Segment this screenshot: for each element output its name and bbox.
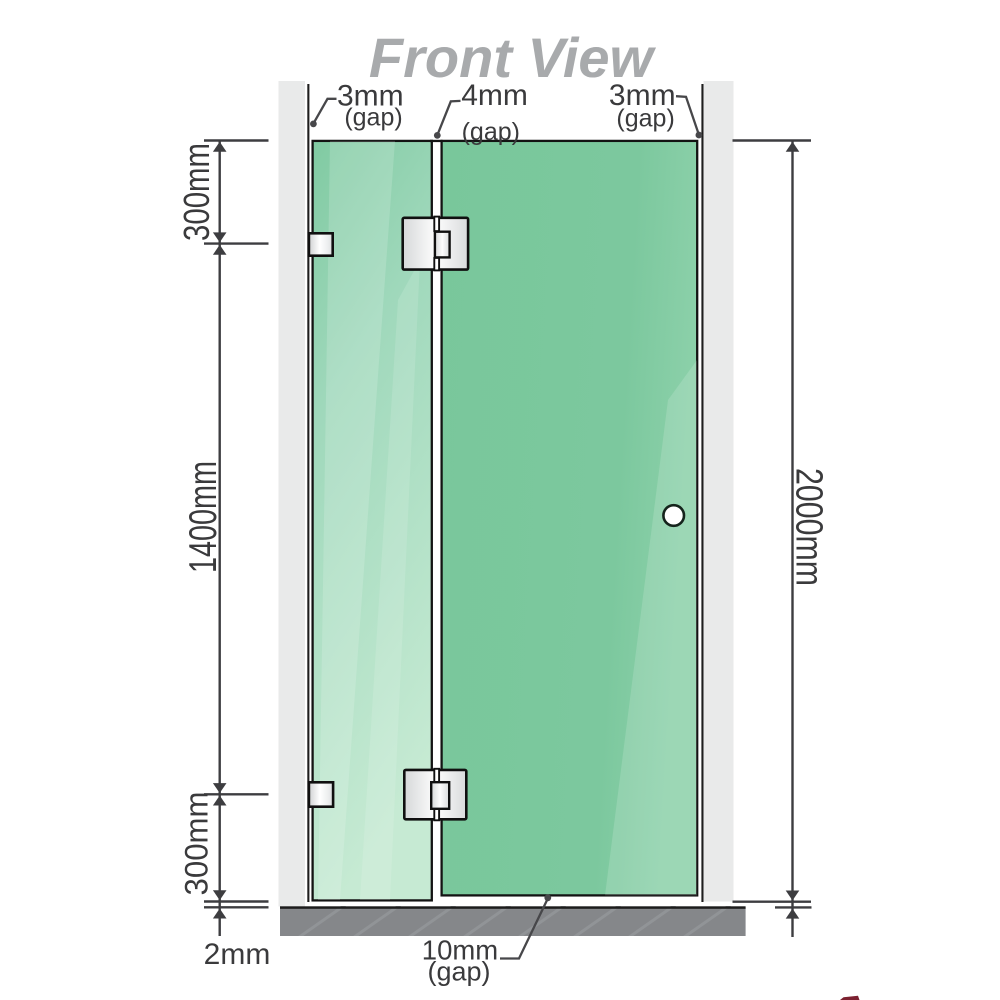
- svg-text:2mm: 2mm: [204, 938, 271, 971]
- svg-text:2000mm: 2000mm: [788, 468, 830, 586]
- svg-text:(gap): (gap): [462, 118, 520, 146]
- svg-text:(gap): (gap): [427, 957, 490, 987]
- svg-text:1400mm: 1400mm: [182, 461, 225, 573]
- svg-text:300mm: 300mm: [179, 792, 215, 896]
- svg-text:(gap): (gap): [344, 103, 402, 131]
- svg-text:(gap): (gap): [616, 104, 674, 132]
- svg-text:4mm: 4mm: [461, 79, 528, 112]
- svg-text:300mm: 300mm: [176, 143, 217, 241]
